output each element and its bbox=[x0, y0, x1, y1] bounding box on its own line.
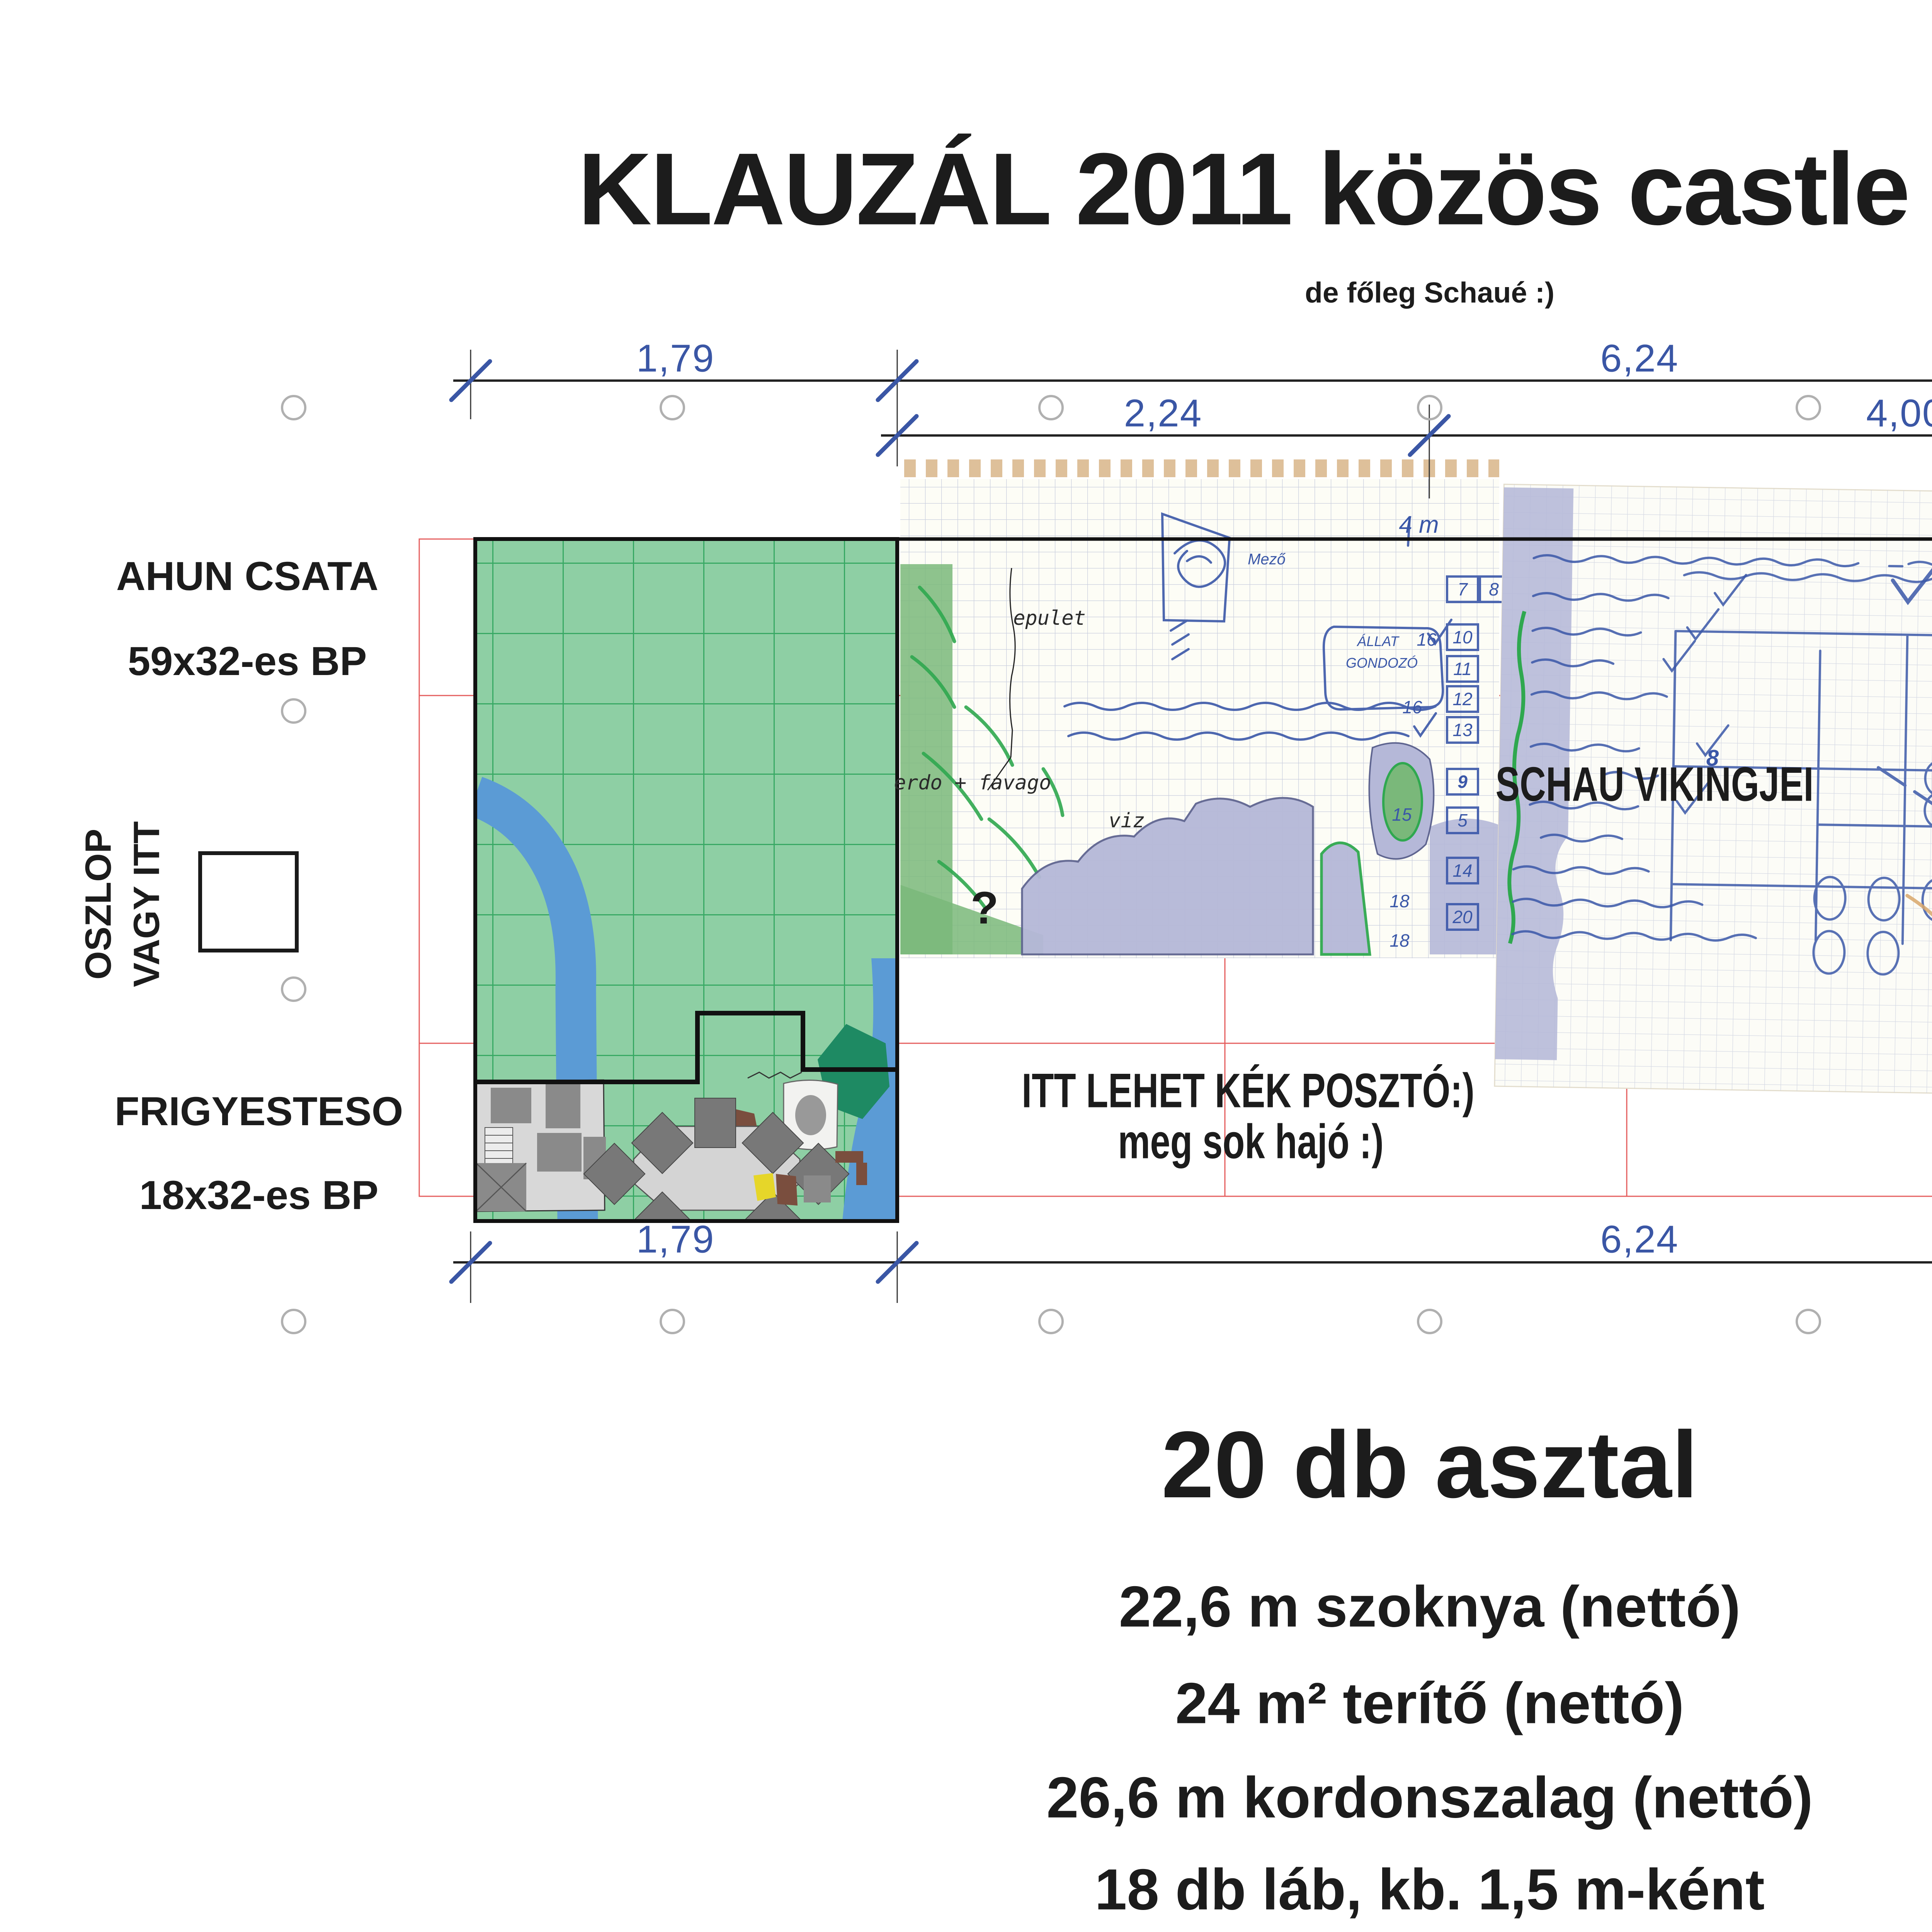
dim-bottom-left: 1,79 bbox=[636, 1218, 715, 1262]
sketch-label-water: viz bbox=[1109, 809, 1145, 832]
area-number: 16 bbox=[1402, 697, 1422, 718]
label-column-left: OSZLOP VAGY ITT bbox=[75, 821, 172, 987]
sketch-boat-note: 8 bbox=[1706, 745, 1719, 771]
island-icon bbox=[1383, 763, 1422, 840]
column-left-line1: OSZLOP bbox=[75, 821, 123, 987]
badge-number: 12 bbox=[1452, 689, 1472, 709]
label-frigyesteso: FRIGYESTESO bbox=[115, 1088, 403, 1135]
dim-top-left: 1,79 bbox=[636, 337, 715, 381]
badge-number: 8 bbox=[1489, 579, 1499, 600]
label-blue-cloth-2: meg sok hajó :) bbox=[1118, 1114, 1384, 1170]
area-number: 18 bbox=[1389, 930, 1409, 951]
badge-number: 5 bbox=[1458, 810, 1468, 831]
badge-number: 13 bbox=[1452, 719, 1472, 740]
label-blue-cloth-1: ITT LEHET KÉK POSZTÓ:) bbox=[1022, 1063, 1475, 1119]
sketch-label-animal-1: ÁLLAT bbox=[1357, 633, 1398, 650]
badge-number: 10 bbox=[1452, 627, 1472, 648]
area-number: 18 bbox=[1389, 891, 1409, 912]
plan-drawing bbox=[0, 0, 1932, 1932]
sketch-label-forest: erdo + favago bbox=[894, 771, 1051, 794]
sketch-label-building: epulet bbox=[1013, 607, 1086, 630]
dim-bottom-right: 6,24 bbox=[1600, 1218, 1679, 1262]
sketch-label-animal-2: GONDOZÓ bbox=[1346, 655, 1418, 671]
sketch-label-field: Mező bbox=[1248, 551, 1286, 568]
area-number: 15 bbox=[1392, 804, 1412, 825]
summary-line-2: 22,6 m szoknya (nettó) bbox=[1119, 1573, 1741, 1640]
label-ahun-size: 59x32-es BP bbox=[128, 638, 367, 685]
badge-number: 9 bbox=[1458, 771, 1468, 792]
page-subtitle: de főleg Schaué :) bbox=[1305, 276, 1554, 309]
badge-number: 7 bbox=[1458, 579, 1468, 600]
label-frigyesteso-size: 18x32-es BP bbox=[139, 1172, 379, 1219]
column-left-line2: VAGY ITT bbox=[123, 821, 171, 987]
question-mark: ? bbox=[971, 882, 998, 934]
summary-line-1: 20 db asztal bbox=[1162, 1410, 1698, 1519]
dim-top-right: 6,24 bbox=[1600, 337, 1679, 381]
sketch-scale-note: 4 m bbox=[1399, 511, 1439, 539]
column-square-left bbox=[200, 853, 297, 951]
area-number: 16 bbox=[1417, 629, 1436, 650]
yellow-marker-icon bbox=[753, 1173, 776, 1201]
page-title: KLAUZÁL 2011 közös castle display, bbox=[578, 131, 1932, 248]
dock-icon bbox=[835, 1151, 863, 1163]
badge-number: 11 bbox=[1453, 658, 1472, 679]
label-schau-vikingjei: SCHAU VIKINGJEI bbox=[1495, 757, 1813, 812]
badge-number: 20 bbox=[1452, 906, 1472, 927]
dim-mid-right: 4,00 bbox=[1866, 391, 1932, 436]
label-ahun-csata: AHUN CSATA bbox=[116, 553, 379, 600]
castle-icon bbox=[475, 1080, 606, 1211]
plan-document: KLAUZÁL 2011 közös castle display, de fő… bbox=[0, 0, 1932, 1932]
badge-number: 14 bbox=[1452, 860, 1472, 881]
summary-line-3: 24 m² terítő (nettó) bbox=[1175, 1670, 1684, 1737]
battle-map bbox=[475, 539, 897, 1284]
summary-line-5: 18 db láb, kb. 1,5 m-ként bbox=[1095, 1856, 1765, 1923]
dim-mid-left: 2,24 bbox=[1124, 391, 1202, 436]
summary-line-4: 26,6 m kordonszalag (nettó) bbox=[1046, 1764, 1813, 1831]
